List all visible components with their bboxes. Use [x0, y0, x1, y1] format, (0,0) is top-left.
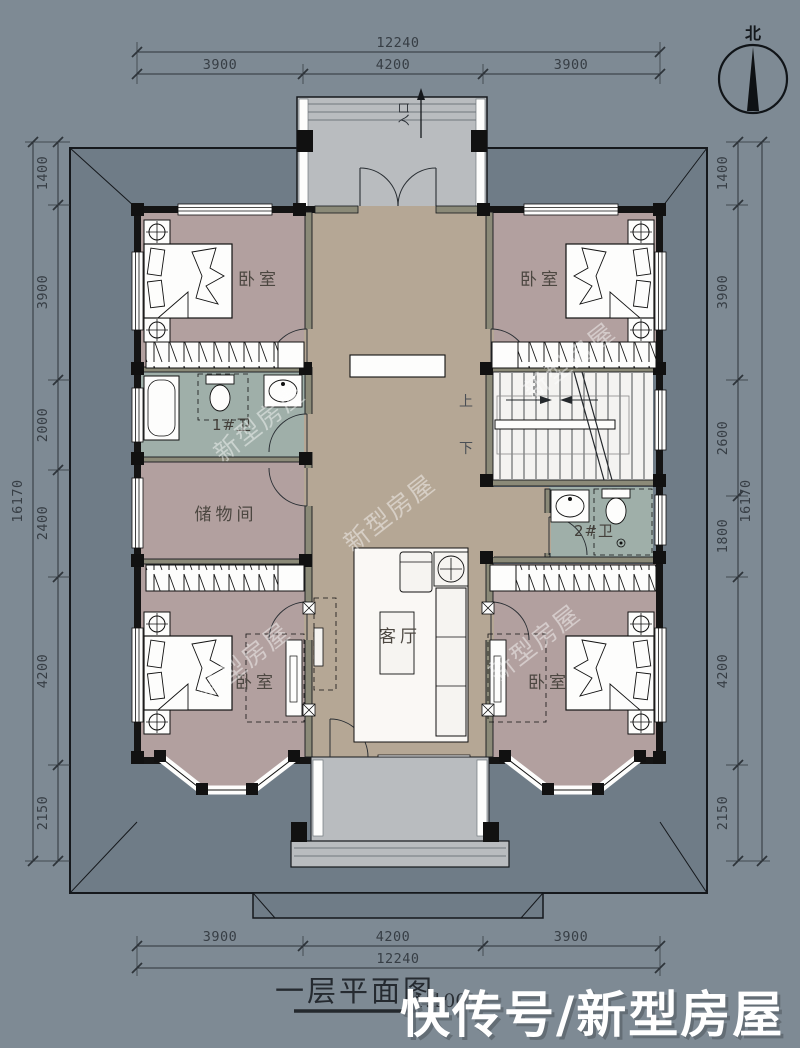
armchair-icon [400, 552, 432, 592]
toilet-icon [206, 375, 234, 384]
window-top-right [524, 204, 618, 215]
floor-plan-drawing: 12240 3900 4200 3900 3900 4200 3900 1224… [0, 0, 800, 1048]
entry-label: 入口 [397, 102, 411, 126]
room-label-living: 客厅 [379, 627, 421, 647]
porch-column [291, 822, 307, 842]
dim-left-seg: 2400 [35, 506, 51, 541]
window-top-left [178, 204, 272, 215]
dim-left-seg: 4200 [35, 654, 51, 689]
dim-bottom-seg: 4200 [376, 929, 411, 945]
dim-left-seg: 2000 [35, 408, 51, 443]
brand-watermark: 快传号/新型房屋 快传号/新型房屋 [400, 986, 787, 1047]
room-label-bedroom-tl: 卧室 [238, 270, 280, 290]
tv-cabinet-icon [314, 628, 323, 666]
dim-left-seg: 2150 [35, 796, 51, 831]
porch-column [297, 130, 313, 152]
porch-steps [291, 841, 509, 867]
dim-right-seg: 3900 [715, 275, 731, 310]
dim-right-seg: 1400 [715, 156, 731, 191]
room-label-bedroom-tr: 卧室 [520, 270, 562, 290]
dim-top-seg: 3900 [203, 57, 238, 73]
toilet-icon [602, 489, 630, 498]
dim-left-seg: 3900 [35, 275, 51, 310]
compass-icon: 北 [719, 24, 787, 113]
dim-bottom-seg: 3900 [203, 929, 238, 945]
compass-north-label: 北 [745, 24, 761, 43]
porch-roof [253, 893, 543, 918]
room-label-bath2: 2#卫 [574, 522, 614, 540]
corridor-floor [487, 487, 549, 557]
south-porch [291, 757, 509, 867]
dim-right-seg: 2150 [715, 796, 731, 831]
dim-top-seg: 4200 [376, 57, 411, 73]
room-label-bedroom-br: 卧室 [528, 673, 570, 693]
entry-arrow-icon [417, 88, 425, 100]
windows-left-wall [132, 252, 143, 722]
dim-right-total: 16170 [738, 479, 754, 522]
stairs-up-label: 上 [459, 394, 473, 410]
dim-right-seg: 4200 [715, 654, 731, 689]
sofa-icon [436, 588, 466, 736]
dim-top-total: 12240 [376, 35, 419, 51]
entry-porch [297, 97, 487, 210]
dim-left-seg: 1400 [35, 156, 51, 191]
compass-needle [747, 47, 759, 111]
dim-right-seg: 1800 [715, 519, 731, 554]
porch-column [483, 822, 499, 842]
dim-bottom-total: 12240 [376, 951, 419, 967]
floor-plan-page: 12240 3900 4200 3900 3900 4200 3900 1224… [0, 0, 800, 1048]
dimension-left [25, 137, 70, 866]
dim-right-seg: 2600 [715, 421, 731, 456]
stairs-down-label: 下 [459, 441, 473, 457]
room-label-storage: 储物间 [195, 505, 258, 525]
dim-left-total: 16170 [10, 479, 26, 522]
brand-watermark-text: 快传号/新型房屋 [400, 986, 784, 1044]
porch-column [471, 130, 487, 152]
dim-bottom-seg: 3900 [554, 929, 589, 945]
dim-top-seg: 3900 [554, 57, 589, 73]
hall-console [350, 355, 445, 377]
